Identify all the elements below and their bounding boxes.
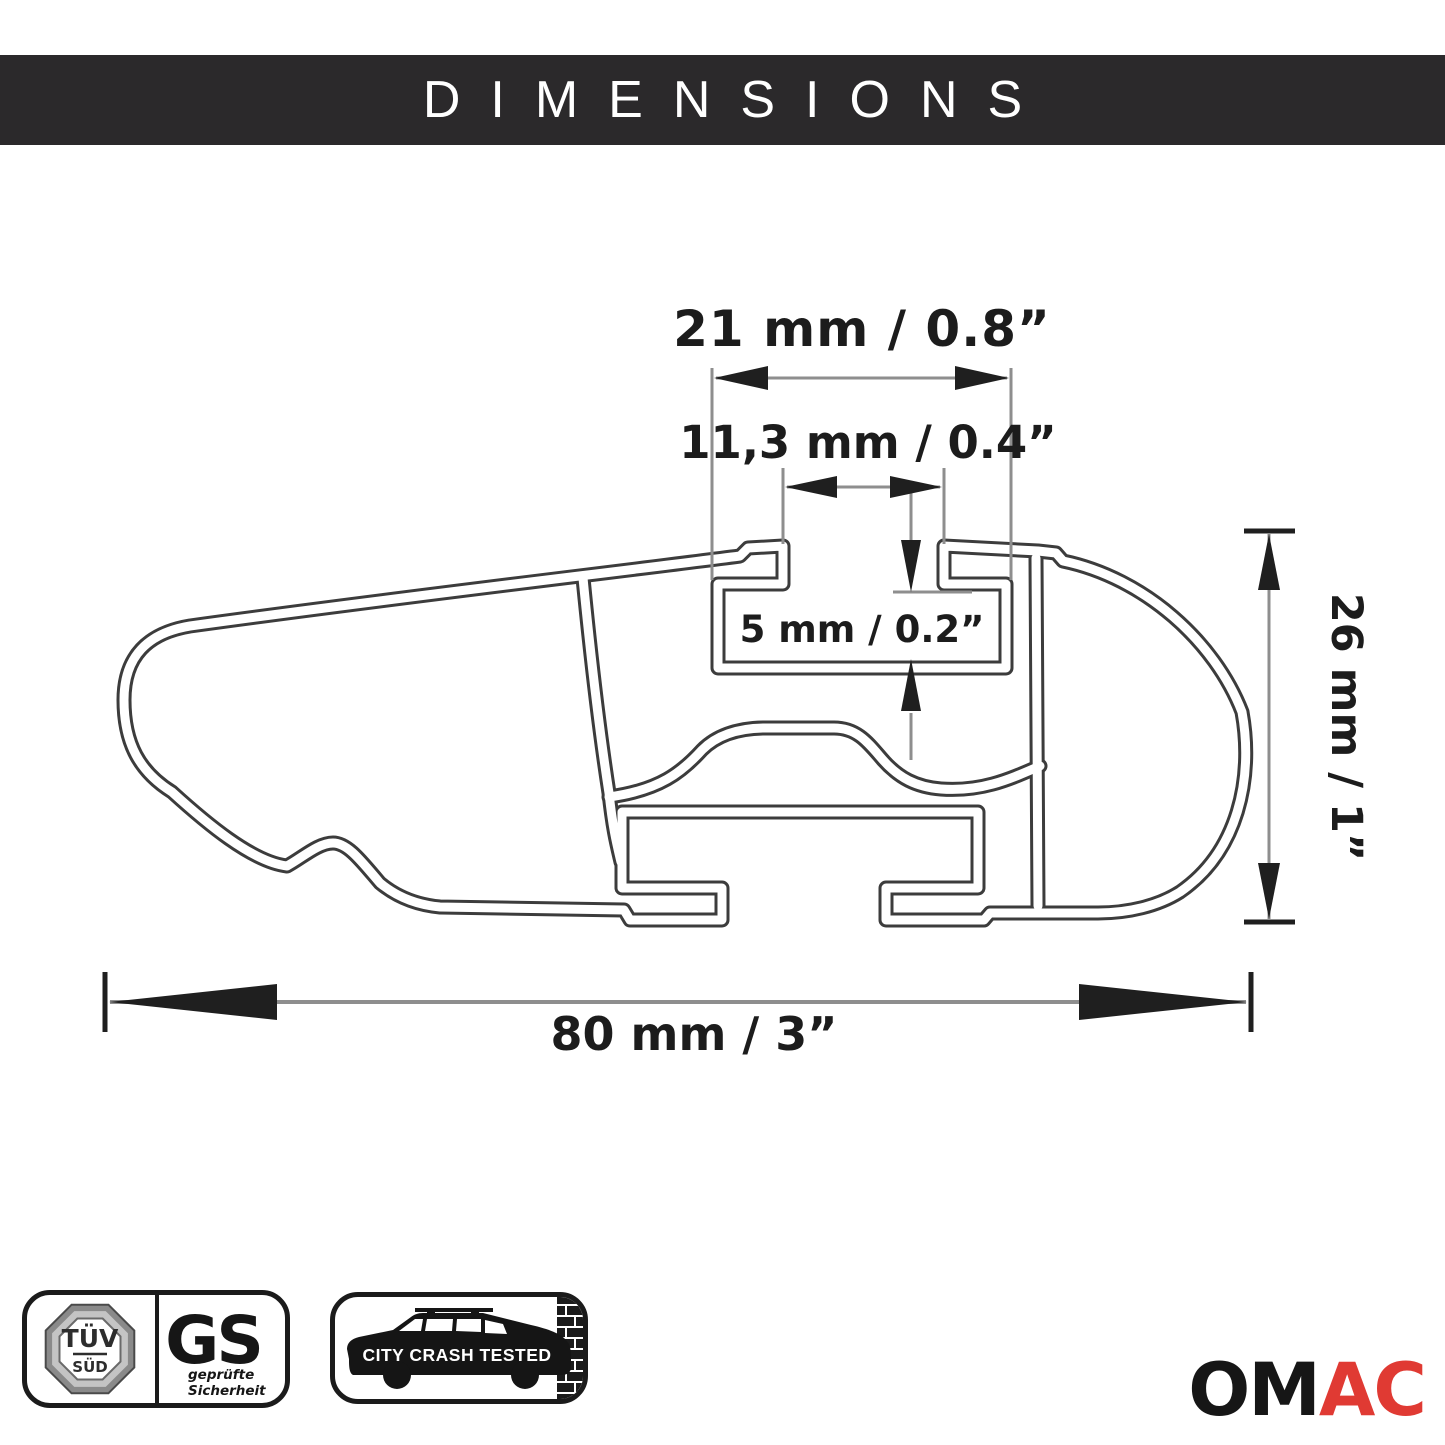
omac-logo-black-letters: OM: [1188, 1354, 1319, 1427]
crash-test-label: CITY CRASH TESTED: [362, 1345, 551, 1365]
sud-text: SÜD: [72, 1357, 107, 1376]
product-dimensions-image: DIMENSIONS 21: [0, 0, 1445, 1445]
gs-mark-icon: GS geprüfte Sicherheit: [165, 1302, 266, 1399]
dim-label-top-width: 21 mm / 0.8”: [673, 300, 1051, 358]
crash-test-car-icon: CITY CRASH TESTED: [347, 1309, 571, 1389]
dimension-slot-opening: 11,3 mm / 0.4”: [679, 416, 1057, 592]
tuv-text: TÜV: [62, 1323, 119, 1353]
dim-label-height: 26 mm / 1”: [1321, 593, 1371, 861]
crossbar-profile-diagram: 21 mm / 0.8” 11,3 mm / 0.4”: [0, 0, 1445, 1445]
gs-caption-line1: geprüfte: [188, 1367, 254, 1383]
dim-label-slot-depth: 5 mm / 0.2”: [740, 608, 985, 651]
profile-walls-fill: [124, 546, 1246, 920]
omac-logo-red-letters: AC: [1319, 1354, 1425, 1427]
dim-label-total-width: 80 mm / 3”: [551, 1007, 838, 1061]
dimension-total-width: 80 mm / 3”: [105, 972, 1251, 1061]
dim-label-slot-opening: 11,3 mm / 0.4”: [679, 416, 1057, 469]
gs-caption-line2: Sicherheit: [188, 1383, 266, 1399]
tuv-gs-badge: TÜV SÜD GS geprüfte Sicherheit: [22, 1290, 290, 1408]
city-crash-tested-badge: CITY CRASH TESTED: [330, 1292, 588, 1404]
omac-logo: OMAC: [1180, 1352, 1425, 1427]
tuv-sud-seal-icon: TÜV SÜD: [46, 1305, 135, 1394]
dimension-height: 26 mm / 1”: [1244, 531, 1371, 922]
